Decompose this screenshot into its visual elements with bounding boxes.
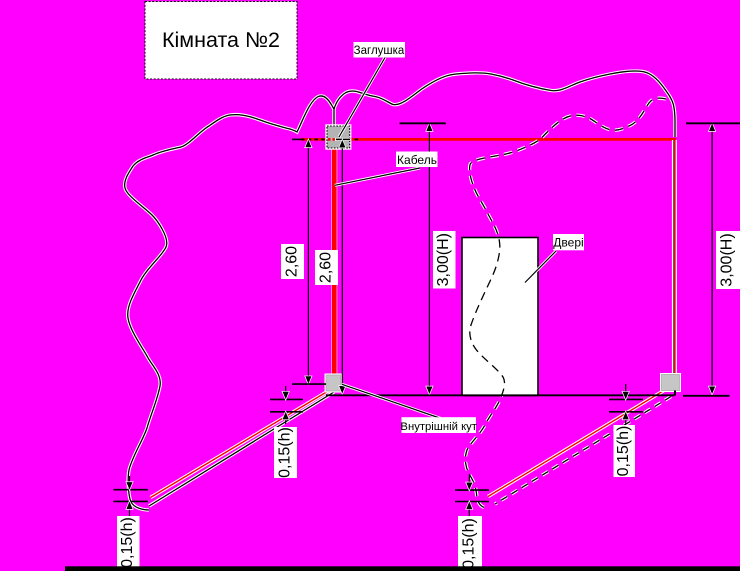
svg-text:0,15(h): 0,15(h) xyxy=(461,518,478,569)
svg-text:0,15(h): 0,15(h) xyxy=(615,426,632,477)
svg-text:3,00(Н): 3,00(Н) xyxy=(719,233,736,286)
svg-text:Двері: Двері xyxy=(553,236,583,250)
svg-text:3,00(Н): 3,00(Н) xyxy=(435,233,452,286)
svg-text:Кабель: Кабель xyxy=(397,153,437,167)
svg-text:2,60: 2,60 xyxy=(284,246,301,277)
svg-text:0,15(h): 0,15(h) xyxy=(119,517,136,568)
svg-text:Внутрішній кут: Внутрішній кут xyxy=(400,421,477,433)
svg-text:0,15(h): 0,15(h) xyxy=(277,427,294,478)
svg-text:2,60: 2,60 xyxy=(318,252,335,283)
svg-text:Кімната №2: Кімната №2 xyxy=(162,28,280,52)
svg-text:Заглушка: Заглушка xyxy=(354,45,405,57)
